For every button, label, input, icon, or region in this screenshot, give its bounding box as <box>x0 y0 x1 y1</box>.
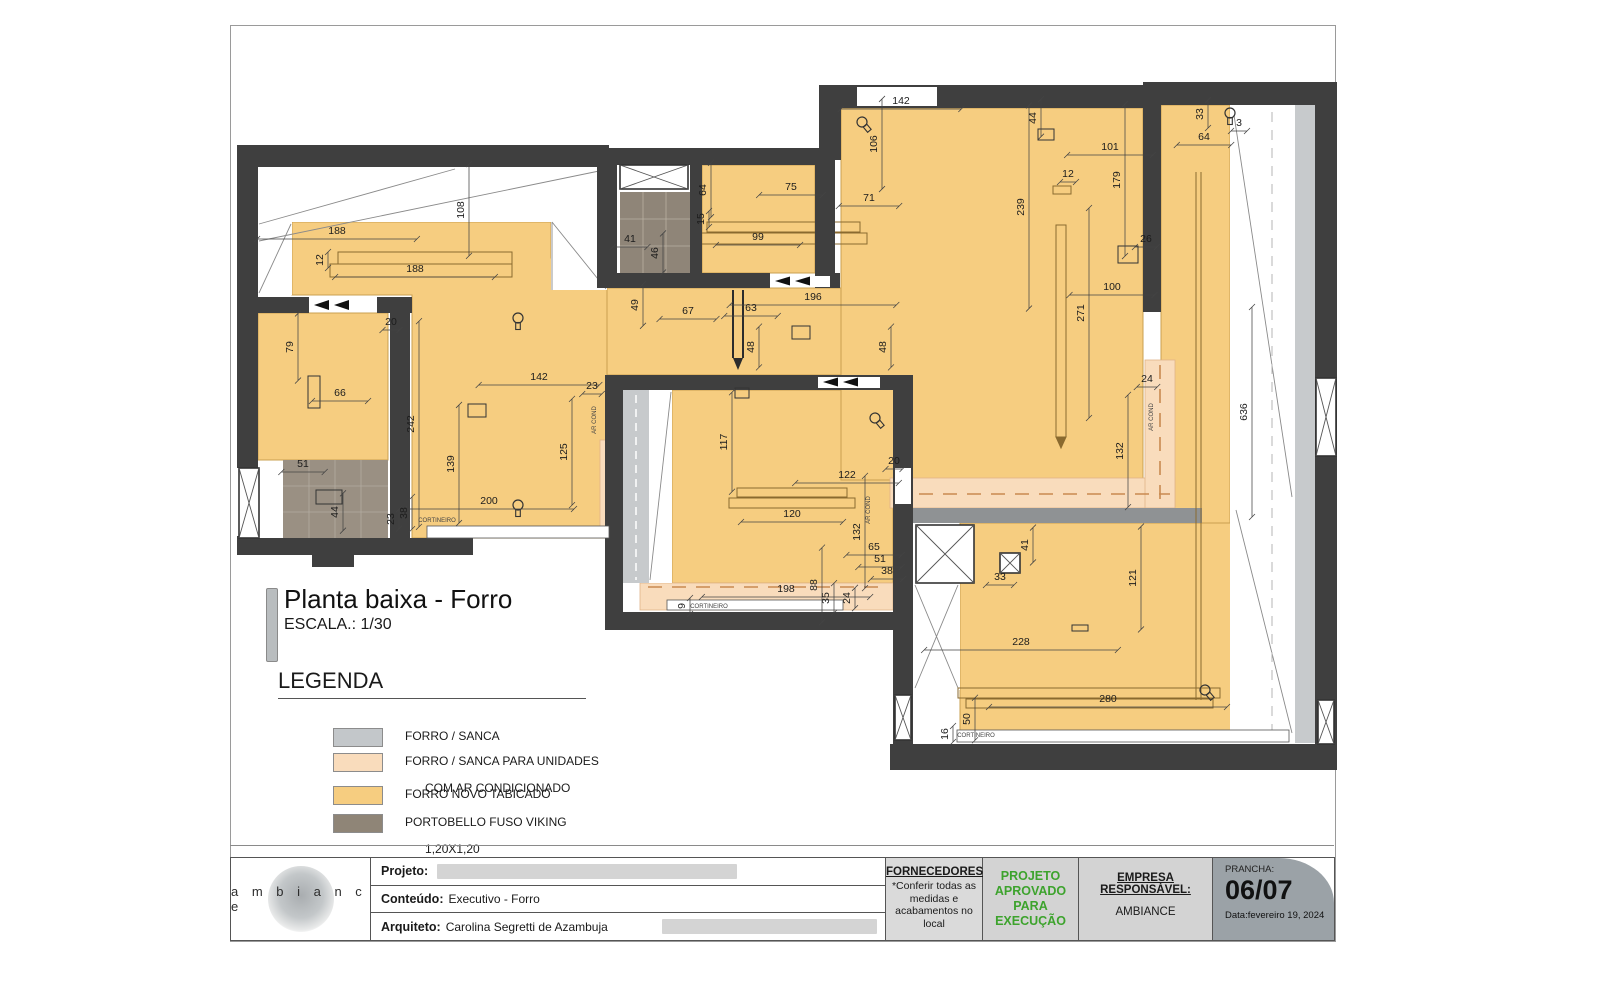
svg-text:132: 132 <box>1114 442 1126 460</box>
svg-text:15: 15 <box>695 213 707 225</box>
arquiteto-redaction-bar <box>662 919 877 934</box>
svg-text:AR COND: AR COND <box>866 496 872 524</box>
svg-text:48: 48 <box>745 341 757 353</box>
fornecedores-note: *Conferir todas as medidas e acabamentos… <box>886 880 982 930</box>
svg-text:120: 120 <box>783 508 801 520</box>
svg-text:88: 88 <box>808 579 820 591</box>
svg-text:188: 188 <box>328 225 346 237</box>
svg-text:63: 63 <box>745 302 757 314</box>
svg-text:79: 79 <box>284 341 296 353</box>
conteudo-label: Conteúdo: <box>381 892 443 906</box>
svg-text:41: 41 <box>624 233 636 245</box>
svg-text:51: 51 <box>874 553 886 565</box>
conteudo-value: Executivo - Forro <box>448 892 539 906</box>
svg-text:23: 23 <box>586 380 598 392</box>
legend-label: PORTOBELLO FUSO VIKING <box>405 815 567 829</box>
svg-text:AR COND: AR COND <box>1149 403 1155 431</box>
empresa-cell: EMPRESA RESPONSÁVEL: AMBIANCE <box>1079 858 1213 940</box>
svg-text:242: 242 <box>405 415 417 433</box>
legend-label: FORRO NOVO TABICADO <box>405 787 551 801</box>
svg-text:280: 280 <box>1099 693 1117 705</box>
projeto-label: Projeto: <box>381 864 428 878</box>
legend-swatch-forro-sanca <box>333 728 383 747</box>
legend-title: LEGENDA <box>278 668 586 699</box>
svg-text:200: 200 <box>480 495 498 507</box>
svg-text:44: 44 <box>329 506 341 518</box>
svg-text:33: 33 <box>994 571 1006 583</box>
svg-text:35: 35 <box>820 592 832 604</box>
svg-text:198: 198 <box>777 583 795 595</box>
svg-text:CORTINEIRO: CORTINEIRO <box>418 518 456 524</box>
fornecedores-label: FORNECEDORES: <box>886 866 982 878</box>
svg-text:3: 3 <box>1236 117 1242 129</box>
svg-text:49: 49 <box>629 299 641 311</box>
svg-text:33: 33 <box>1194 108 1206 120</box>
prancha-number: 06/07 <box>1225 875 1334 905</box>
svg-text:51: 51 <box>297 458 309 470</box>
svg-text:38: 38 <box>398 507 410 519</box>
svg-text:46: 46 <box>649 247 661 259</box>
screenshot: 1881218810879665144202421391422312520023… <box>0 0 1600 1000</box>
svg-text:12: 12 <box>1062 168 1074 180</box>
svg-text:CORTINEIRO: CORTINEIRO <box>957 733 995 739</box>
svg-text:132: 132 <box>851 523 863 541</box>
conteudo-row: Conteúdo: Executivo - Forro <box>371 886 885 914</box>
projeto-redaction-bar <box>437 864 737 879</box>
approval-stamp: PROJETO APROVADO PARA EXECUÇÃO <box>983 869 1078 929</box>
svg-text:636: 636 <box>1238 403 1250 421</box>
svg-text:100: 100 <box>1103 281 1121 293</box>
svg-text:122: 122 <box>838 469 856 481</box>
svg-text:66: 66 <box>334 387 346 399</box>
arquiteto-row: Arquiteto: Carolina Segretti de Azambuja <box>371 913 885 940</box>
svg-text:108: 108 <box>455 201 467 219</box>
svg-text:24: 24 <box>841 592 853 604</box>
svg-text:139: 139 <box>445 455 457 473</box>
plan-scale: ESCALA.: 1/30 <box>284 616 392 634</box>
svg-text:41: 41 <box>1019 539 1031 551</box>
empresa-label: EMPRESA RESPONSÁVEL: <box>1079 872 1212 896</box>
svg-text:228: 228 <box>1012 636 1030 648</box>
svg-text:9: 9 <box>676 603 688 609</box>
svg-text:271: 271 <box>1075 304 1087 322</box>
svg-text:CORTINEIRO: CORTINEIRO <box>690 604 728 610</box>
svg-text:117: 117 <box>718 433 730 450</box>
title-accent-bar <box>266 588 278 662</box>
svg-text:179: 179 <box>1111 171 1123 189</box>
svg-text:AR COND: AR COND <box>592 406 598 434</box>
legend-swatch-portobello <box>333 814 383 833</box>
svg-text:142: 142 <box>530 371 548 383</box>
svg-text:38: 38 <box>881 565 893 577</box>
projeto-row: Projeto: <box>371 858 885 886</box>
svg-text:125: 125 <box>558 443 570 461</box>
svg-text:64: 64 <box>1198 131 1210 143</box>
svg-text:101: 101 <box>1101 141 1119 153</box>
svg-text:20: 20 <box>888 455 900 467</box>
svg-text:23: 23 <box>385 513 397 525</box>
prancha-cell: PRANCHA: 06/07 Data:fevereiro 19, 2024 <box>1213 858 1334 940</box>
company-logo: a m b i a n c e <box>231 858 371 940</box>
svg-text:64: 64 <box>697 184 709 196</box>
legend-item-forro-novo: FORRO NOVO TABICADO <box>333 786 551 805</box>
svg-text:24: 24 <box>1141 373 1153 385</box>
svg-text:75: 75 <box>785 181 797 193</box>
svg-text:16: 16 <box>939 728 951 740</box>
svg-text:121: 121 <box>1127 569 1139 587</box>
svg-text:142: 142 <box>892 95 910 107</box>
title-block: a m b i a n c e Projeto: Conteúdo: Execu… <box>230 857 1335 941</box>
logo-text: a m b i a n c e <box>231 884 370 914</box>
fornecedores-cell: FORNECEDORES: *Conferir todas as medidas… <box>886 858 983 940</box>
svg-text:48: 48 <box>877 341 889 353</box>
arquiteto-value: Carolina Segretti de Azambuja <box>446 920 608 934</box>
legend-swatch-forro-sanca-ac <box>333 753 383 772</box>
svg-text:26: 26 <box>1140 233 1152 245</box>
empresa-value: AMBIANCE <box>1079 906 1212 918</box>
svg-text:71: 71 <box>863 192 875 204</box>
legend-swatch-forro-novo <box>333 786 383 805</box>
svg-text:67: 67 <box>682 305 694 317</box>
sheet-date: Data:fevereiro 19, 2024 <box>1225 910 1334 921</box>
svg-text:20: 20 <box>385 316 397 328</box>
approval-cell: PROJETO APROVADO PARA EXECUÇÃO <box>983 858 1079 940</box>
page-title: Planta baixa - Forro <box>284 584 512 615</box>
svg-text:44: 44 <box>1027 112 1039 124</box>
svg-text:12: 12 <box>314 254 326 266</box>
svg-text:106: 106 <box>868 135 880 153</box>
arquiteto-label: Arquiteto: <box>381 920 441 934</box>
prancha-label: PRANCHA: <box>1225 864 1334 875</box>
svg-text:239: 239 <box>1015 198 1027 216</box>
svg-text:99: 99 <box>752 231 764 243</box>
svg-text:65: 65 <box>868 541 880 553</box>
svg-text:196: 196 <box>804 291 822 303</box>
svg-text:188: 188 <box>406 263 424 275</box>
legend-label: FORRO / SANCA <box>405 729 500 743</box>
legend-label: FORRO / SANCA PARA UNIDADES <box>405 754 599 768</box>
legend-item-forro-sanca: FORRO / SANCA <box>333 728 500 747</box>
svg-text:50: 50 <box>961 713 973 725</box>
